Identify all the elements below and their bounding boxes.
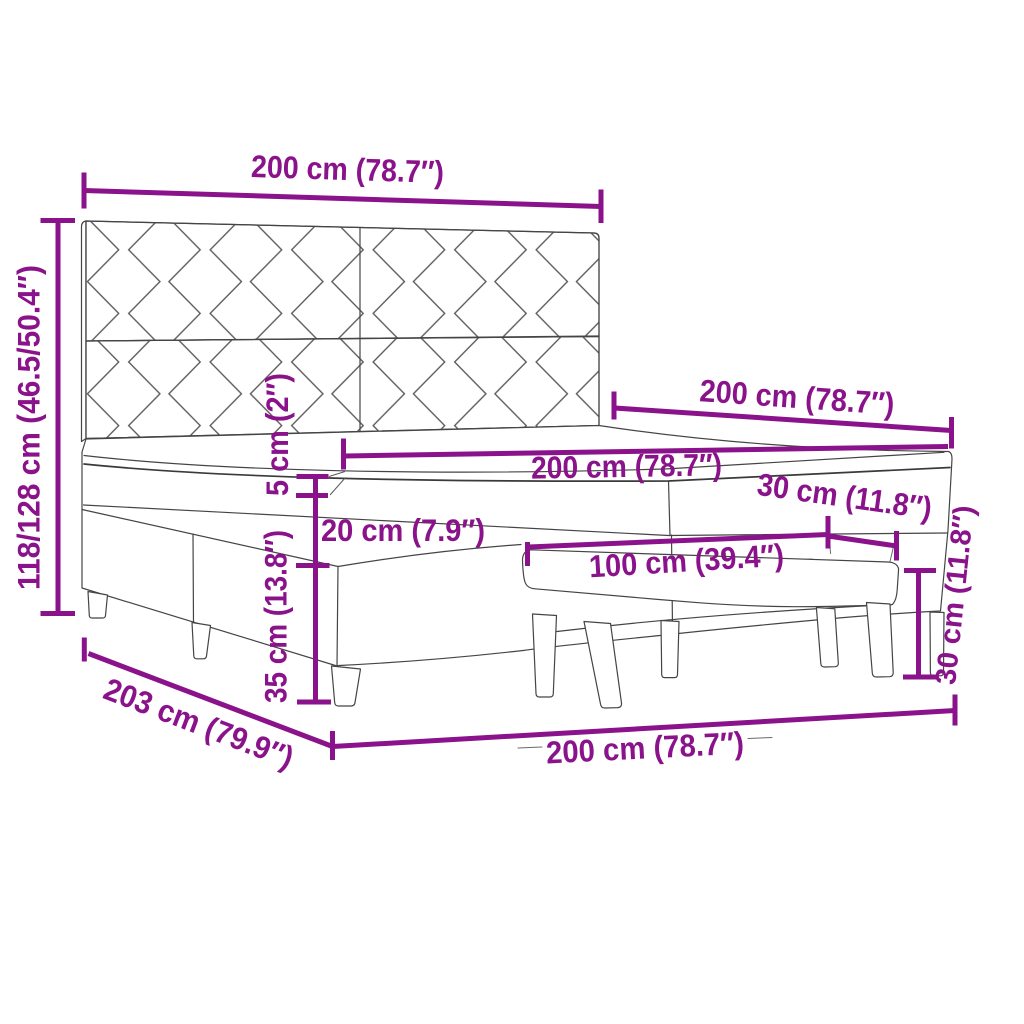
svg-text:20 cm (7.9″): 20 cm (7.9″) bbox=[321, 512, 485, 548]
svg-text:118/128 cm (46.5/50.4″): 118/128 cm (46.5/50.4″) bbox=[11, 265, 47, 590]
svg-text:200 cm (78.7″): 200 cm (78.7″) bbox=[531, 446, 723, 485]
svg-text:5 cm (2″): 5 cm (2″) bbox=[259, 373, 295, 496]
svg-text:200 cm (78.7″): 200 cm (78.7″) bbox=[251, 148, 445, 190]
svg-text:35 cm (13.8″): 35 cm (13.8″) bbox=[258, 530, 294, 703]
